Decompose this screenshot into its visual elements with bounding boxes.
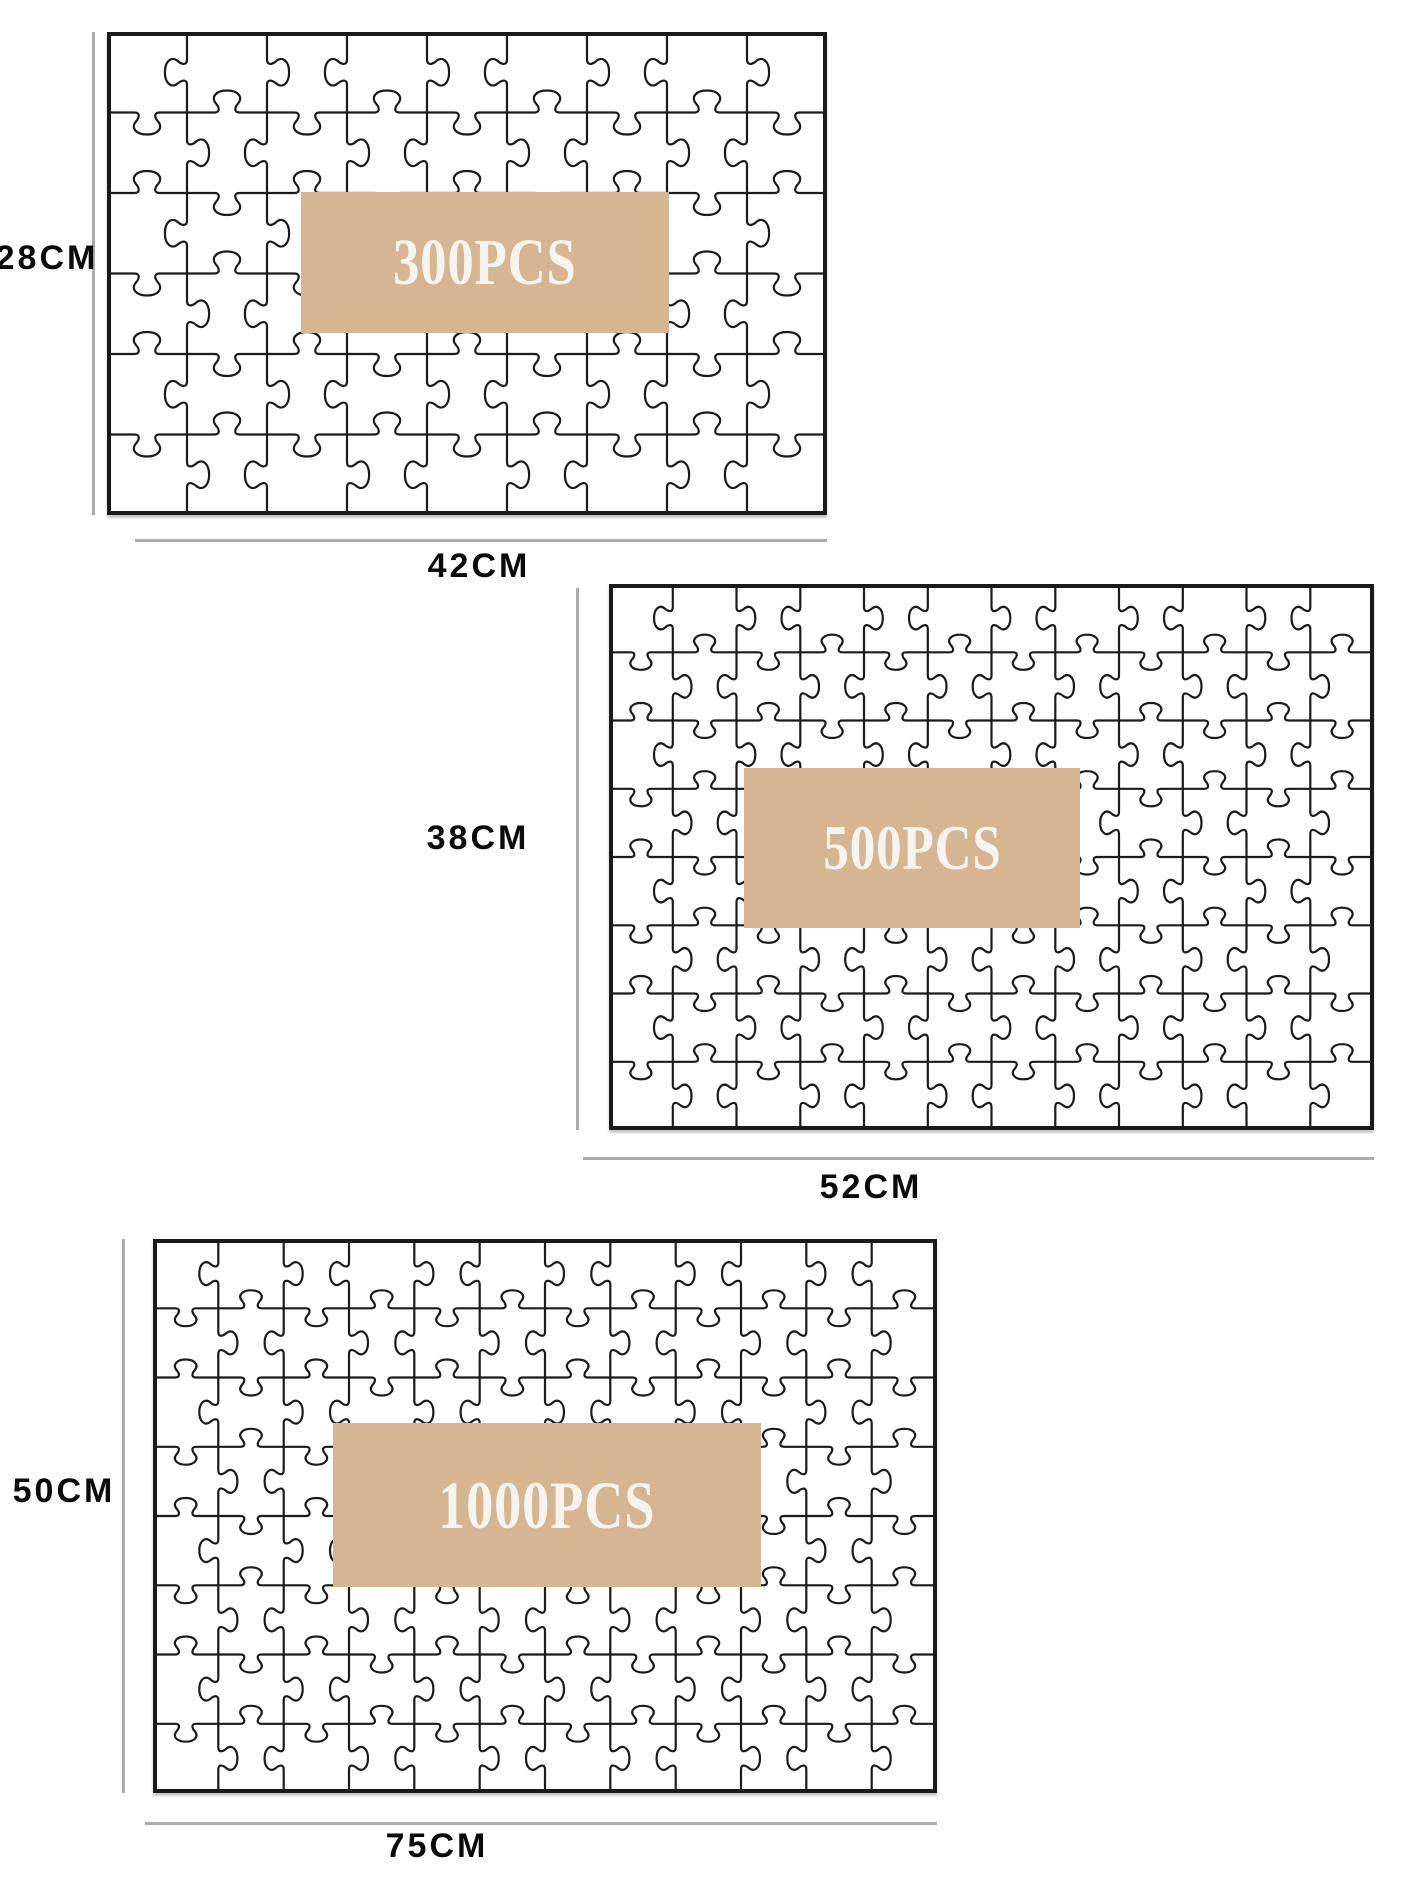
pieces-count-badge-300: 300PCS	[301, 192, 669, 333]
width-label-500: 52CM	[820, 1170, 923, 1204]
width-label-300: 42CM	[428, 549, 531, 583]
pieces-count-label-500: 500PCS	[823, 816, 1001, 880]
height-label-300: 28CM	[0, 241, 98, 275]
pieces-count-badge-1000: 1000PCS	[333, 1423, 761, 1587]
width-dimension-line-1000	[145, 1822, 937, 1825]
puzzle-size-diagram: 300PCS 28CM 42CM 500PCS 38CM 52CM 1000PC…	[0, 0, 1417, 1890]
pieces-count-label-1000: 1000PCS	[438, 1471, 655, 1539]
height-label-1000: 50CM	[13, 1474, 116, 1508]
width-dimension-line-300	[135, 539, 827, 542]
height-dimension-line-500	[576, 588, 579, 1130]
pieces-count-label-300: 300PCS	[393, 230, 577, 296]
width-dimension-line-500	[583, 1157, 1374, 1160]
pieces-count-badge-500: 500PCS	[744, 768, 1080, 928]
height-dimension-line-1000	[122, 1239, 125, 1793]
width-label-1000: 75CM	[386, 1829, 489, 1863]
height-label-500: 38CM	[427, 821, 530, 855]
